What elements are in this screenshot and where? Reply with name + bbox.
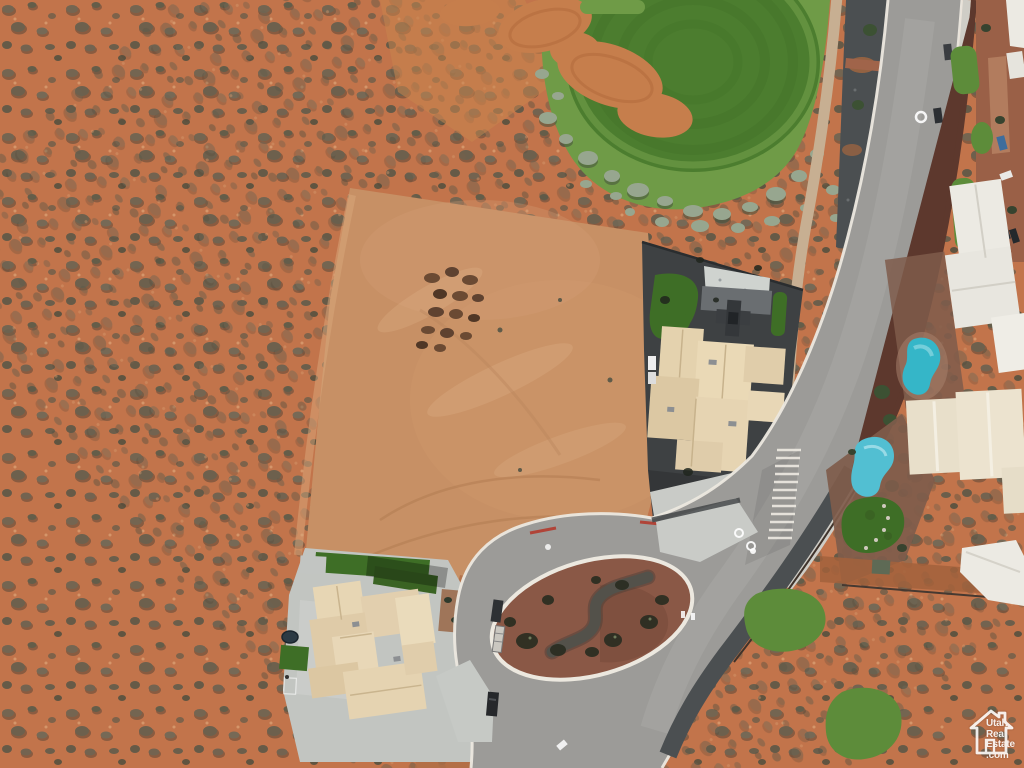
watermark-line: Utah — [986, 719, 1015, 730]
aerial-photo: Utah Real Estate .com — [0, 0, 1024, 768]
grass-tongue — [580, 0, 645, 14]
watermark-line: Estate — [986, 740, 1015, 751]
turf-strip-left — [279, 645, 309, 671]
aerial-scene — [0, 0, 1024, 768]
lawn — [950, 45, 981, 95]
watermark-text: Utah Real Estate .com — [986, 719, 1015, 761]
shed — [872, 560, 891, 575]
lawn-oval — [971, 122, 993, 154]
dark-suv — [486, 692, 499, 717]
watermark: Utah Real Estate .com — [969, 708, 1024, 768]
manhole — [545, 544, 551, 550]
watermark-line: .com — [986, 751, 1015, 762]
trampoline — [282, 631, 298, 643]
